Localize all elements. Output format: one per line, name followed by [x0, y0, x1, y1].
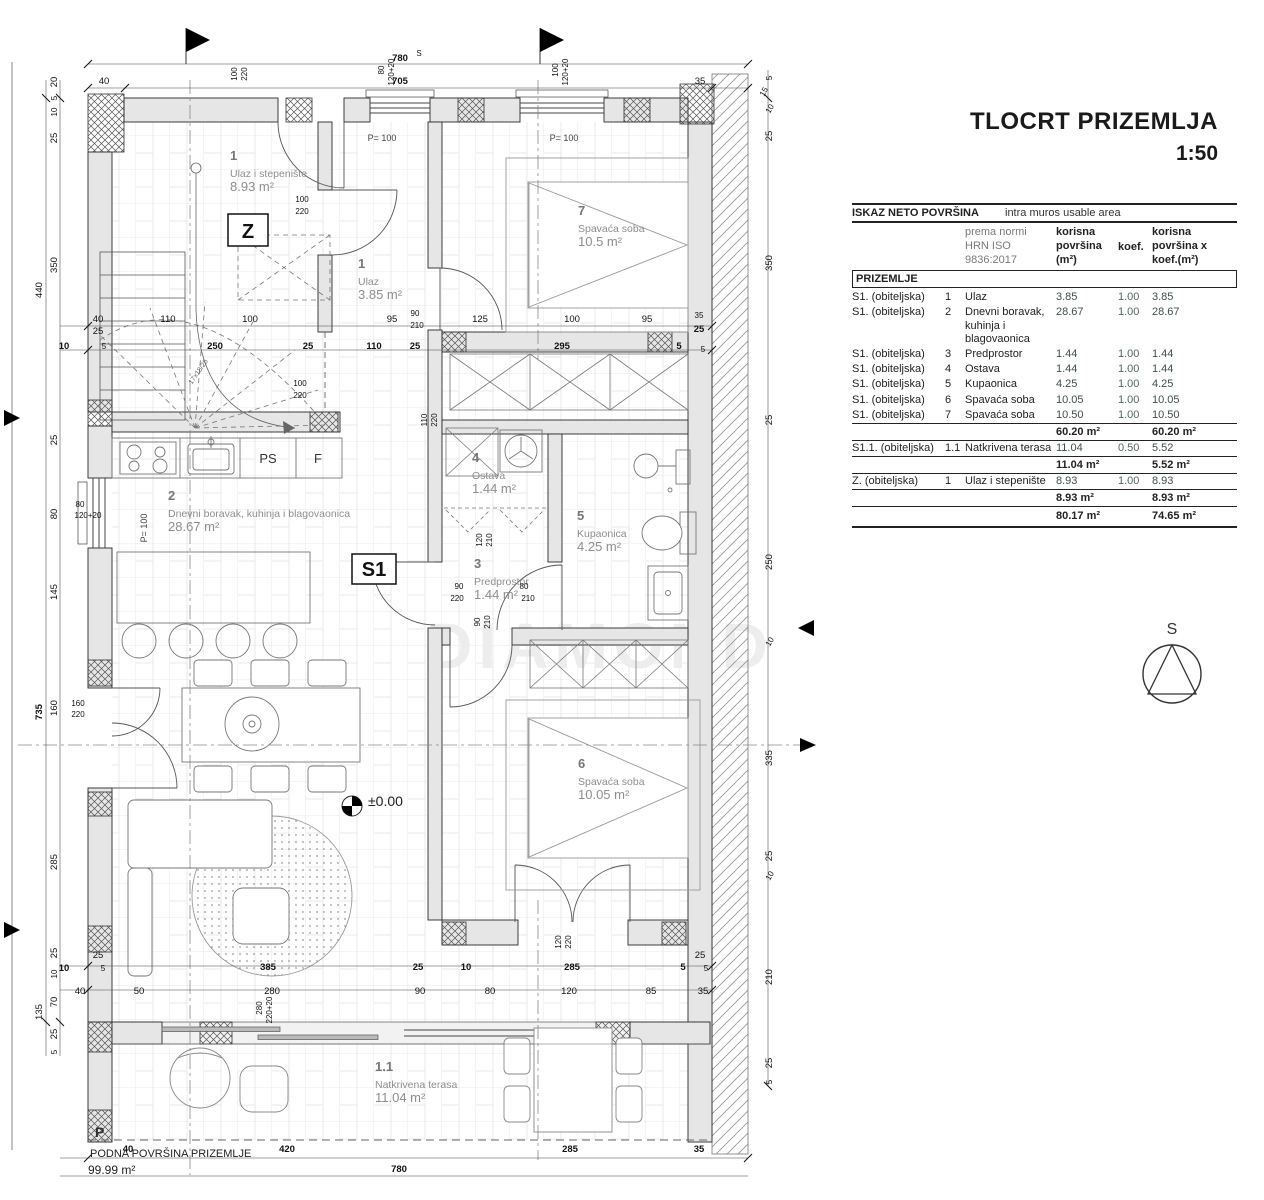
- compass-north-label: S: [1167, 621, 1178, 638]
- dim-label: 70: [49, 997, 60, 1008]
- dim-label: 25: [93, 950, 104, 961]
- col-header-areakoef: korisna površina x koef.(m²): [1152, 226, 1237, 267]
- dim-label: 10: [59, 341, 70, 352]
- dim-label: 110: [420, 413, 429, 426]
- dim-label: 40: [99, 76, 110, 87]
- dim-label: 295: [554, 341, 571, 352]
- cell-area: 1.44: [1056, 348, 1118, 361]
- table-row: S1. (obiteljska)2Dnevni boravak, kuhinja…: [852, 305, 1237, 347]
- total-area: 80.17 m²: [1056, 510, 1118, 522]
- dim-label: 420: [279, 1144, 295, 1155]
- column-headers: prema normi HRN ISO 9836:2017 korisna po…: [852, 223, 1237, 269]
- dim-label: 5: [101, 964, 106, 973]
- dim-label: 735: [34, 703, 45, 720]
- col-header-norm: prema normi HRN ISO 9836:2017: [965, 226, 1056, 267]
- dim-label: 10: [50, 969, 59, 978]
- dim-label: 285: [564, 962, 581, 973]
- room-area: 4.25 m²: [577, 539, 622, 554]
- dim-label: 220: [295, 207, 309, 216]
- dim-label: 15: [758, 85, 771, 98]
- section-header: PRIZEMLJE: [852, 270, 1237, 288]
- cell-name: Ulaz: [965, 291, 1056, 304]
- room-area: 1.44 m²: [472, 481, 517, 496]
- subtotal-s11-row: 11.04 m² 5.52 m²: [852, 456, 1237, 473]
- table-title-hr: ISKAZ NETO POVRŠINA: [852, 207, 1005, 219]
- floor-plan-drawing: DIAMOND: [0, 0, 840, 1200]
- cell-koef: 0.50: [1118, 442, 1152, 455]
- room-area: 11.04 m²: [375, 1090, 426, 1105]
- dim-label: 220: [293, 391, 307, 400]
- table-row: S1. (obiteljska)4Ostava1.441.001.44: [852, 362, 1237, 377]
- dim-label: 90: [455, 582, 464, 591]
- table-row: S1. (obiteljska)1Ulaz3.851.003.85: [852, 290, 1237, 305]
- dim-label: 10: [764, 102, 777, 115]
- dim-label: 120+20: [561, 58, 570, 85]
- row-z: Z. (obiteljska) 1 Ulaz i stepenište 8.93…: [852, 473, 1237, 489]
- plan-label: P= 100: [139, 514, 149, 543]
- dim-label: 285: [562, 1144, 579, 1155]
- floor-plan-page: DIAMOND: [0, 0, 1264, 1200]
- dim-label: 25: [410, 341, 421, 352]
- table-row: S1. (obiteljska)5Kupaonica4.251.004.25: [852, 377, 1237, 392]
- dim-label: 10: [59, 963, 70, 974]
- room-number: 5: [577, 508, 584, 523]
- plan-label: P= 100: [550, 133, 579, 143]
- cell-no: 1: [945, 475, 965, 488]
- cell-areakoef: 10.05: [1152, 394, 1237, 407]
- dim-label: 80: [377, 65, 386, 74]
- cell-no: 2: [945, 306, 965, 346]
- cell-areakoef: 1.44: [1152, 363, 1237, 376]
- cell-no: 5: [945, 378, 965, 391]
- dim-label: 145: [49, 584, 60, 600]
- cell-area: 10.50: [1056, 409, 1118, 422]
- dim-label: 100: [242, 314, 258, 325]
- plan-label: P= 100: [368, 133, 397, 143]
- dim-label: 5: [676, 341, 682, 352]
- dim-label: 220: [430, 413, 439, 427]
- table-row: S1. (obiteljska)7Spavaća soba10.501.0010…: [852, 408, 1237, 423]
- cell-name: Natkrivena terasa: [965, 442, 1056, 455]
- cell-no: 3: [945, 348, 965, 361]
- room-number: 4: [472, 450, 480, 465]
- room-area: 28.67 m²: [168, 519, 220, 534]
- dim-label: 25: [49, 133, 60, 144]
- cell-unit: S1. (obiteljska): [852, 348, 945, 361]
- cell-area: 28.67: [1056, 306, 1118, 346]
- plan-label: ±0.00: [368, 793, 403, 809]
- dim-label: 120+20: [387, 58, 396, 85]
- cell-areakoef: 3.85: [1152, 291, 1237, 304]
- unit-label: Z: [242, 221, 254, 243]
- cell-name: Ostava: [965, 363, 1056, 376]
- net-area-table: ISKAZ NETO POVRŠINA intra muros usable a…: [852, 203, 1237, 528]
- dim-label: 210: [483, 615, 492, 629]
- dim-label: 5: [704, 964, 709, 973]
- subtotal-s1-row: 60.20 m² 60.20 m²: [852, 423, 1237, 440]
- dim-label: 100: [230, 67, 239, 81]
- cell-no: 1.1: [945, 442, 965, 455]
- cell-name: Kupaonica: [965, 378, 1056, 391]
- dim-label: 210: [410, 321, 424, 330]
- dim-label: 440: [34, 282, 45, 298]
- col-header-area: korisna površina (m²): [1056, 226, 1118, 267]
- room-area: 10.05 m²: [578, 787, 630, 802]
- dim-label: 120: [475, 533, 484, 547]
- subtotal-s11-area: 11.04 m²: [1056, 459, 1118, 471]
- dim-label: 120: [554, 935, 563, 949]
- unit-label: S1: [362, 559, 386, 581]
- dim-label: 125: [472, 314, 488, 325]
- room-number: 7: [578, 203, 585, 218]
- dim-label: 35: [694, 1144, 705, 1155]
- dim-label: 120+20: [75, 511, 102, 520]
- cell-area: 10.05: [1056, 394, 1118, 407]
- room-number: 3: [474, 556, 481, 571]
- subtotal-s1-areakoef: 60.20 m²: [1152, 426, 1237, 438]
- cell-unit: S1. (obiteljska): [852, 394, 945, 407]
- page-title: TLOCRT PRIZEMLJA: [852, 108, 1218, 136]
- cell-areakoef: 28.67: [1152, 306, 1237, 346]
- cell-name: Spavaća soba: [965, 409, 1056, 422]
- cell-area: 1.44: [1056, 363, 1118, 376]
- dim-label: 780: [391, 1164, 407, 1175]
- dim-label: 100: [551, 63, 560, 77]
- cell-koef: 1.00: [1118, 475, 1152, 488]
- dim-label: 120: [561, 986, 577, 997]
- row-s11: S1.1. (obiteljska) 1.1 Natkrivena terasa…: [852, 440, 1237, 456]
- dim-label: 220: [564, 935, 573, 949]
- dim-label: 25: [764, 131, 775, 142]
- dim-label: 35: [695, 76, 706, 87]
- subtotal-z-areakoef: 8.93 m²: [1152, 492, 1237, 504]
- dim-label: 80: [49, 509, 60, 520]
- dim-label: 35: [695, 311, 704, 320]
- cell-name: Spavaća soba: [965, 394, 1056, 407]
- plan-label: PS: [259, 451, 277, 466]
- cell-area: 11.04: [1056, 442, 1118, 455]
- dim-label: 100: [564, 314, 580, 325]
- total-areakoef: 74.65 m²: [1152, 510, 1237, 522]
- cell-areakoef: 1.44: [1152, 348, 1237, 361]
- cell-areakoef: 5.52: [1152, 442, 1237, 455]
- dim-label: 335: [764, 750, 775, 766]
- total-row: 80.17 m² 74.65 m²: [852, 506, 1237, 528]
- subtotal-z-area: 8.93 m²: [1056, 492, 1118, 504]
- room-number: 6: [578, 756, 585, 771]
- cell-name: Dnevni boravak, kuhinja i blagovaonica: [965, 306, 1056, 346]
- cell-koef: 1.00: [1118, 394, 1152, 407]
- dim-label: 220: [71, 710, 85, 719]
- cell-no: 6: [945, 394, 965, 407]
- cell-koef: 1.00: [1118, 378, 1152, 391]
- dim-label: 90: [411, 309, 420, 318]
- room-number: 1: [230, 148, 237, 163]
- cell-unit: Z. (obiteljska): [852, 475, 945, 488]
- dim-label: 25: [49, 435, 60, 446]
- dim-label: 5: [50, 95, 59, 100]
- cell-unit: S1.1. (obiteljska): [852, 442, 945, 455]
- dim-label: 220: [450, 594, 464, 603]
- neighbour-wall-hatch: [712, 74, 748, 1154]
- dim-label: 385: [260, 962, 277, 973]
- cell-unit: S1. (obiteljska): [852, 378, 945, 391]
- dim-label: 80: [76, 500, 85, 509]
- cell-koef: 1.00: [1118, 348, 1152, 361]
- cell-koef: 1.00: [1118, 291, 1152, 304]
- dim-label: 35: [698, 986, 709, 997]
- dim-label: 25: [695, 950, 706, 961]
- cell-koef: 1.00: [1118, 363, 1152, 376]
- dim-label: 10: [764, 869, 777, 882]
- cell-areakoef: 10.50: [1152, 409, 1237, 422]
- dim-label: 5: [680, 962, 686, 973]
- room-number: 2: [168, 488, 175, 503]
- dim-label: 100: [295, 195, 309, 204]
- dim-label: 25: [49, 948, 60, 959]
- dim-label: 90: [415, 986, 426, 997]
- table-row: S1. (obiteljska)3Predprostor1.441.001.44: [852, 347, 1237, 362]
- north-compass: S: [1133, 612, 1213, 712]
- cell-no: 4: [945, 363, 965, 376]
- dim-label: 210: [521, 594, 535, 603]
- cell-no: 1: [945, 291, 965, 304]
- subtotal-z-row: 8.93 m² 8.93 m²: [852, 489, 1237, 506]
- room-number: 1.1: [375, 1059, 393, 1074]
- dim-label: 110: [160, 314, 175, 325]
- drawing-scale: 1:50: [852, 142, 1218, 166]
- cell-unit: S1. (obiteljska): [852, 306, 945, 346]
- dim-label: 25: [764, 415, 775, 426]
- plan-label: 99.99 m²: [88, 1163, 135, 1177]
- level-marker-icon: [342, 796, 362, 816]
- cell-koef: 1.00: [1118, 306, 1152, 346]
- room-area: 3.85 m²: [358, 287, 403, 302]
- table-title-en: intra muros usable area: [1005, 207, 1237, 219]
- room-number: 1: [358, 256, 365, 271]
- room-area: 8.93 m²: [230, 179, 275, 194]
- dim-label: 350: [764, 255, 775, 271]
- dim-label: 25: [93, 326, 104, 337]
- dim-label: 100: [293, 379, 307, 388]
- table-rows: S1. (obiteljska)1Ulaz3.851.003.85S1. (ob…: [852, 290, 1237, 423]
- dim-label: 210: [764, 969, 775, 985]
- dim-label: 280: [264, 986, 280, 997]
- col-header-koef: koef.: [1118, 226, 1152, 267]
- dim-label: 80: [520, 582, 529, 591]
- room-area: 10.5 m²: [578, 234, 623, 249]
- cell-no: 7: [945, 409, 965, 422]
- cell-koef: 1.00: [1118, 409, 1152, 422]
- dim-label: 210: [485, 533, 494, 547]
- dim-label: 5: [50, 1049, 59, 1054]
- cell-unit: S1. (obiteljska): [852, 409, 945, 422]
- dim-label: 5: [102, 342, 107, 351]
- dim-label: 25: [49, 1029, 60, 1040]
- dim-label: 250: [764, 554, 775, 570]
- plan-label: PODNA POVRŠINA PRIZEMLJE: [90, 1147, 251, 1160]
- dim-label: 25: [694, 324, 705, 335]
- section-flag-icon: [186, 28, 564, 64]
- dim-label: 10: [50, 107, 59, 116]
- dim-label: S: [416, 49, 421, 58]
- cell-areakoef: 8.93: [1152, 475, 1237, 488]
- dim-label: 95: [642, 314, 653, 325]
- dim-label: 90: [473, 617, 482, 626]
- dim-label: 220+20: [265, 996, 274, 1023]
- dim-label: 5: [765, 75, 774, 80]
- dim-label: 285: [49, 854, 60, 870]
- dim-label: 5: [701, 345, 706, 354]
- dim-label: 350: [49, 257, 60, 273]
- compass-needle-icon: [1148, 645, 1196, 694]
- table-header-row: ISKAZ NETO POVRŠINA intra muros usable a…: [852, 205, 1237, 223]
- dim-label: 25: [303, 341, 314, 352]
- cell-name: Ulaz i stepenište: [965, 475, 1056, 488]
- dim-label: 85: [646, 986, 657, 997]
- title-block: TLOCRT PRIZEMLJA 1:50: [852, 108, 1218, 166]
- dim-label: 135: [34, 1004, 45, 1020]
- dim-label: 250: [207, 341, 223, 352]
- dim-label: 160: [71, 699, 85, 708]
- cell-name: Predprostor: [965, 348, 1056, 361]
- cell-area: 3.85: [1056, 291, 1118, 304]
- dim-label: 95: [387, 314, 398, 325]
- dim-label: 10: [461, 962, 472, 973]
- dim-label: 50: [134, 986, 145, 997]
- dining-table: [182, 660, 360, 792]
- dim-label: 40: [93, 314, 104, 325]
- dim-label: 40: [75, 986, 86, 997]
- room-area: 1.44 m²: [474, 587, 519, 602]
- dim-label: 110: [366, 341, 381, 352]
- dim-label: 25: [764, 851, 775, 862]
- dim-label: 220: [240, 67, 249, 81]
- plan-label: F: [314, 451, 322, 466]
- cell-areakoef: 4.25: [1152, 378, 1237, 391]
- dim-label: 160: [49, 700, 60, 716]
- dim-label: 25: [413, 962, 424, 973]
- dim-label: 20: [49, 77, 60, 88]
- cell-unit: S1. (obiteljska): [852, 363, 945, 376]
- subtotal-s11-areakoef: 5.52 m²: [1152, 459, 1237, 471]
- dim-label: 80: [485, 986, 496, 997]
- table-row: S1. (obiteljska)6Spavaća soba10.051.0010…: [852, 393, 1237, 408]
- plan-label: P: [95, 1124, 104, 1140]
- subtotal-s1-area: 60.20 m²: [1056, 426, 1118, 438]
- dim-label: 5: [765, 1079, 774, 1084]
- dim-label: 280: [255, 1001, 264, 1015]
- cell-unit: S1. (obiteljska): [852, 291, 945, 304]
- dim-label: 25: [764, 1058, 775, 1069]
- cell-area: 8.93: [1056, 475, 1118, 488]
- cell-area: 4.25: [1056, 378, 1118, 391]
